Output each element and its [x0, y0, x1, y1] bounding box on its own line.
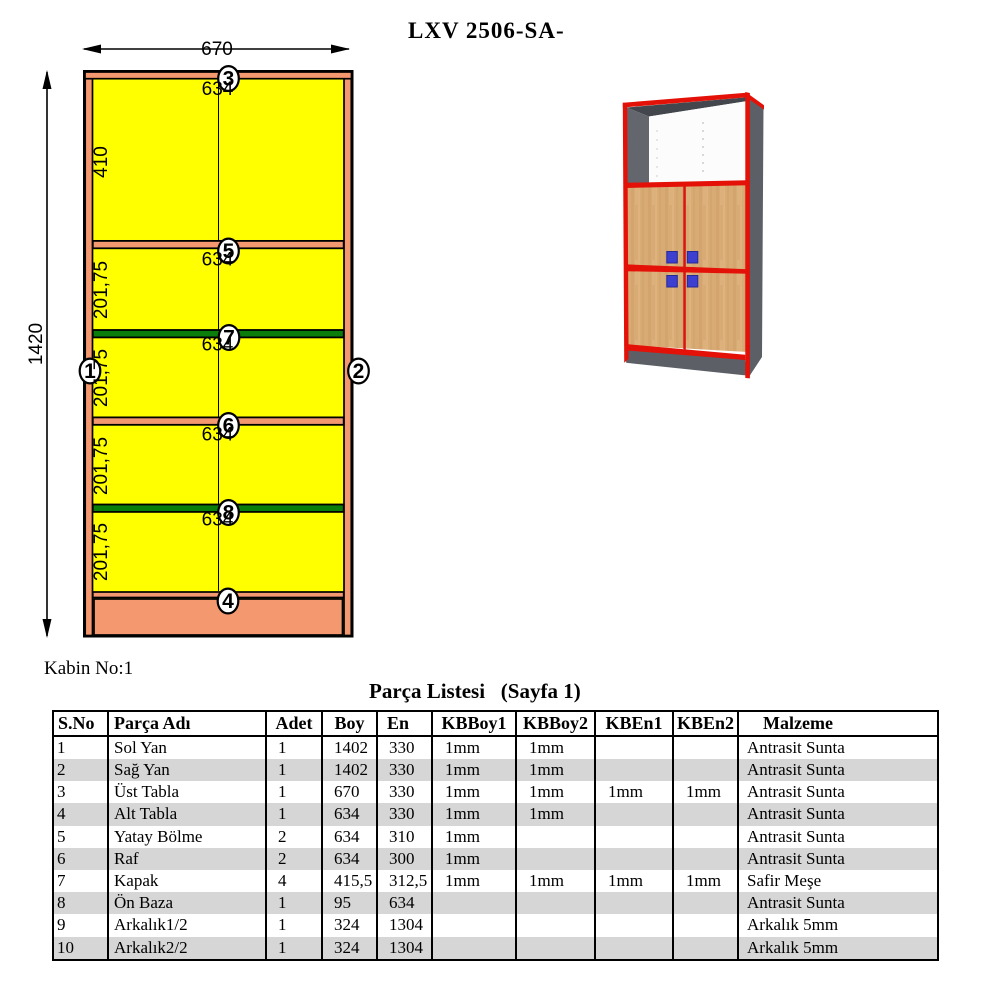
svg-text:634: 634 — [202, 250, 234, 271]
svg-text:2: 2 — [353, 360, 365, 383]
svg-text:1420: 1420 — [26, 323, 47, 365]
svg-text:670: 670 — [201, 39, 233, 60]
svg-text:201,75: 201,75 — [91, 523, 112, 581]
svg-text:4: 4 — [222, 590, 234, 613]
svg-text:634: 634 — [202, 79, 234, 100]
svg-text:634: 634 — [202, 510, 234, 531]
svg-text:634: 634 — [202, 425, 234, 446]
svg-text:410: 410 — [91, 146, 112, 178]
svg-text:634: 634 — [202, 335, 234, 356]
svg-text:201,75: 201,75 — [91, 437, 112, 495]
svg-text:201,75: 201,75 — [91, 261, 112, 319]
svg-text:201,75: 201,75 — [91, 349, 112, 407]
